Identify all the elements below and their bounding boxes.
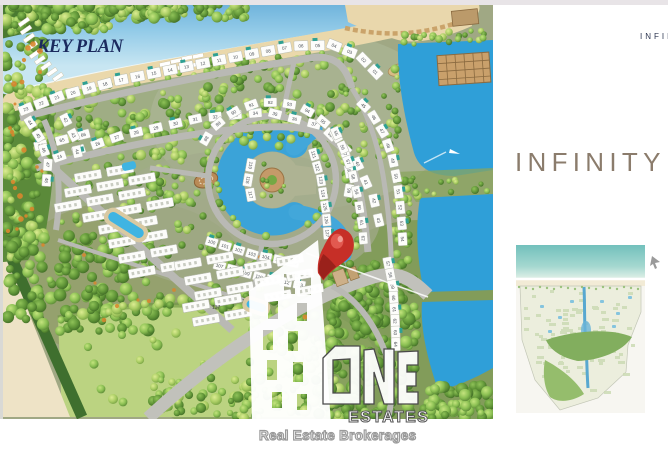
svg-text:KEY PLAN: KEY PLAN [36,37,124,57]
svg-text:62: 62 [360,235,365,241]
svg-text:126: 126 [324,216,330,224]
svg-text:92: 92 [268,100,274,105]
svg-text:53: 53 [399,221,404,227]
svg-text:52: 52 [397,205,402,211]
svg-text:137: 137 [212,305,221,311]
svg-text:64: 64 [393,342,398,348]
svg-text:48: 48 [44,178,49,184]
svg-text:60: 60 [391,295,396,301]
svg-text:ESTATES: ESTATES [348,409,429,426]
svg-text:34: 34 [253,111,259,116]
svg-text:05: 05 [315,43,321,48]
svg-text:61: 61 [392,307,397,313]
svg-text:63: 63 [393,330,398,336]
svg-text:127: 127 [325,229,331,237]
svg-text:62: 62 [392,318,397,324]
svg-text:INFINITY: INFINITY [640,32,668,41]
svg-text:06: 06 [298,43,304,48]
svg-text:54: 54 [400,236,405,242]
svg-text:INFINITY: INFINITY [515,147,666,177]
svg-text:Real Estate Brokerages: Real Estate Brokerages [259,428,416,443]
svg-text:47: 47 [45,162,50,168]
